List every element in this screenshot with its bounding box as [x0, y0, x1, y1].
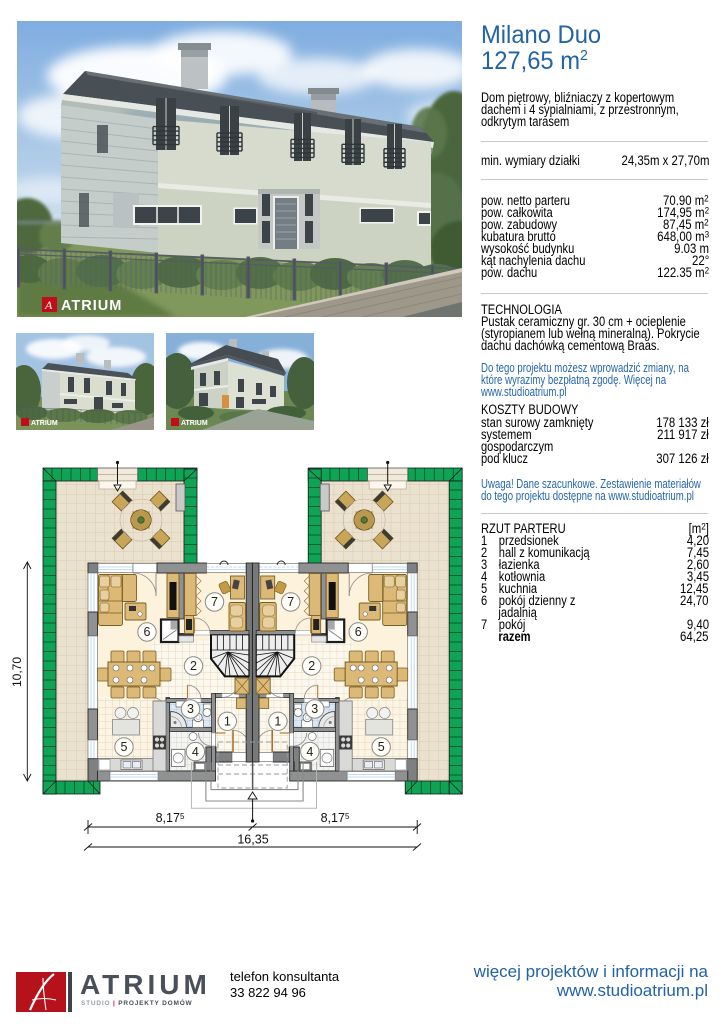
- svg-text:7: 7: [287, 595, 294, 609]
- svg-text:1: 1: [224, 715, 231, 729]
- svg-text:10,70: 10,70: [10, 657, 24, 687]
- svg-text:7: 7: [211, 595, 218, 609]
- svg-text:8,175: 8,175: [321, 811, 350, 825]
- svg-text:4: 4: [192, 745, 199, 759]
- svg-text:3: 3: [187, 702, 194, 716]
- svg-text:4: 4: [306, 745, 313, 759]
- svg-text:16,35: 16,35: [237, 833, 268, 847]
- svg-text:5: 5: [121, 740, 128, 754]
- svg-text:6: 6: [355, 625, 362, 639]
- svg-text:2: 2: [308, 659, 315, 673]
- svg-text:6: 6: [144, 625, 151, 639]
- svg-text:5: 5: [378, 740, 385, 754]
- svg-text:2: 2: [190, 659, 197, 673]
- svg-text:8,175: 8,175: [156, 811, 185, 825]
- svg-text:3: 3: [311, 702, 318, 716]
- svg-text:1: 1: [274, 715, 281, 729]
